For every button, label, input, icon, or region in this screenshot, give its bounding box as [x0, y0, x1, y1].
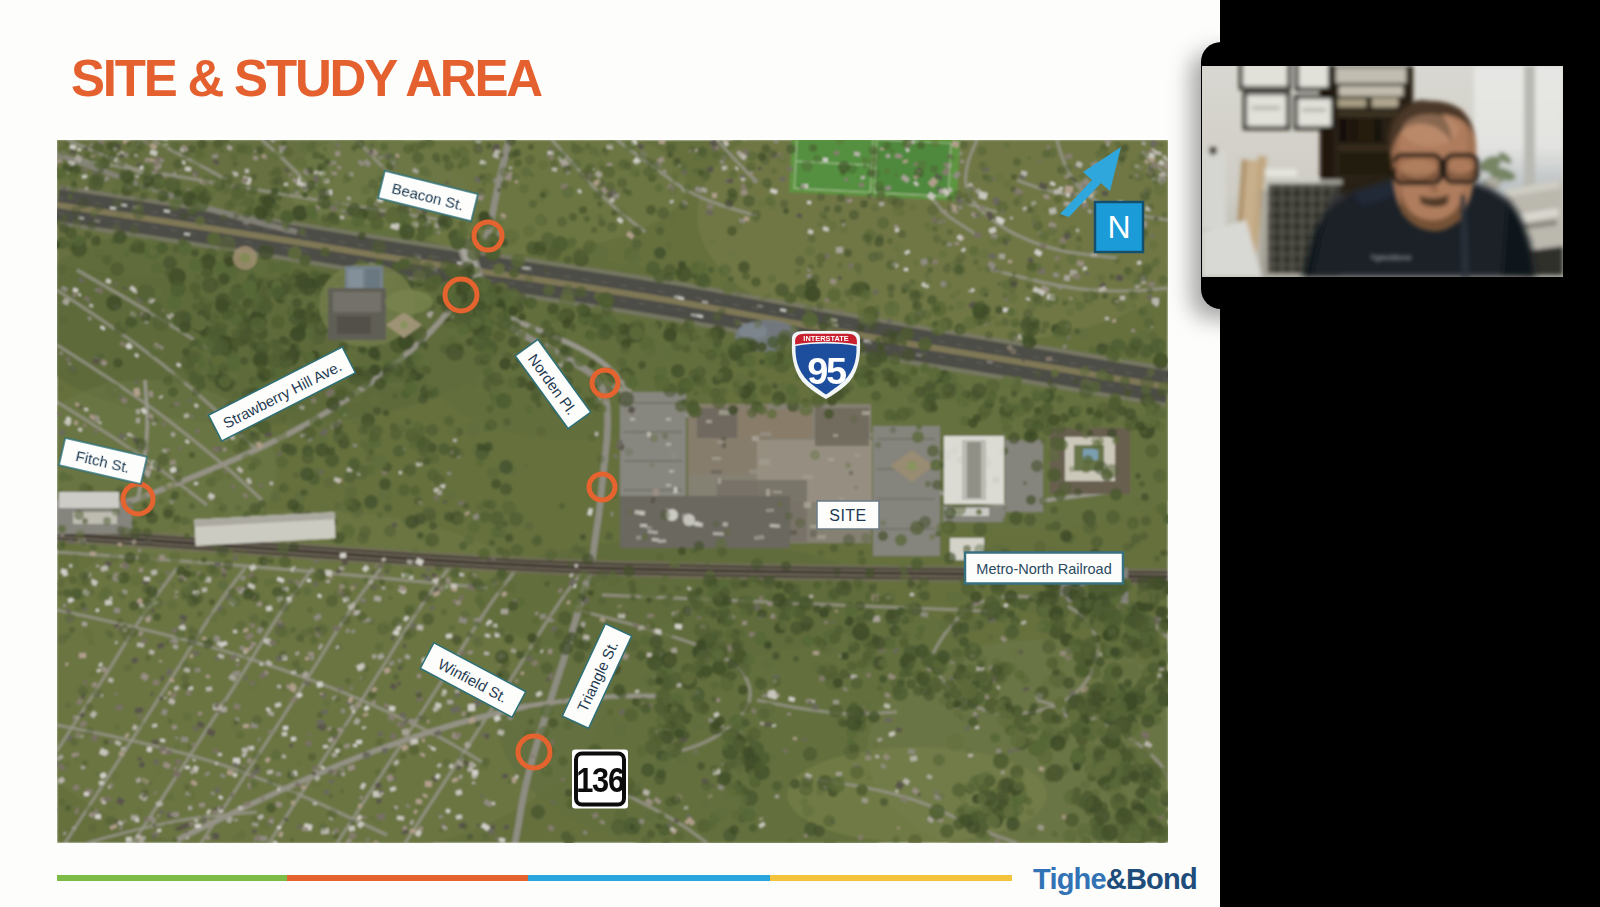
- svg-text:SITE: SITE: [829, 507, 867, 524]
- svg-text:95: 95: [807, 351, 846, 392]
- svg-text:N: N: [1107, 209, 1130, 245]
- svg-text:Metro-North Railroad: Metro-North Railroad: [976, 561, 1111, 577]
- svg-text:136: 136: [576, 760, 624, 799]
- svg-text:INTERSTATE: INTERSTATE: [803, 336, 849, 343]
